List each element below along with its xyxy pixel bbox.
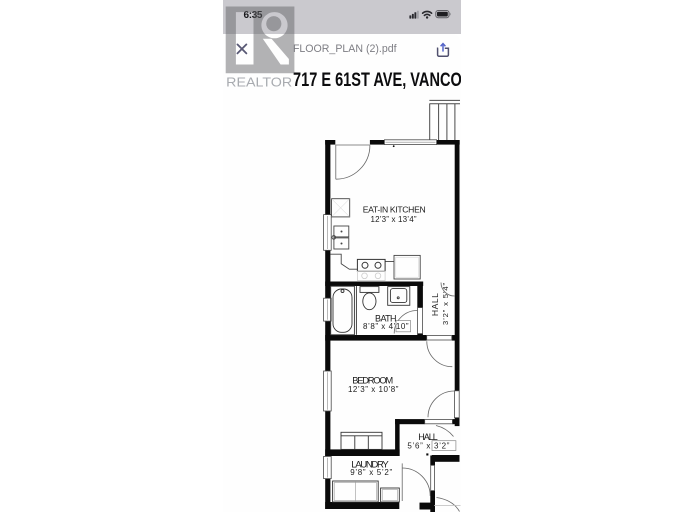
svg-text:REALTOR: REALTOR	[226, 74, 292, 89]
